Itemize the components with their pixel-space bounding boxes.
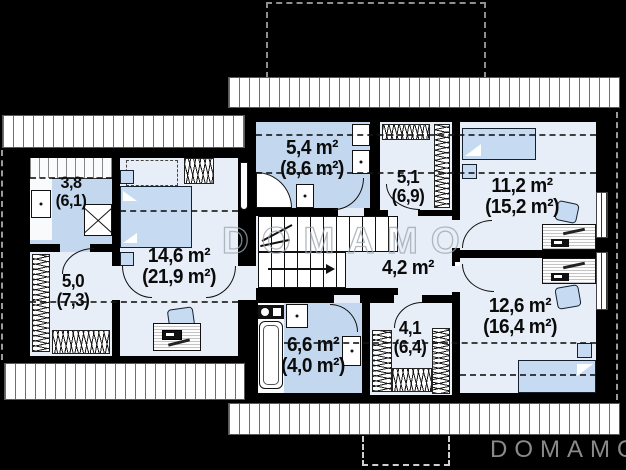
door-opening [388,210,418,216]
stair-arrow-head [326,264,335,274]
stair-direction-arrow [268,268,328,270]
nightstand-icon [577,343,592,358]
door-leaf [240,162,248,210]
door-opening [112,266,120,300]
nightstand-icon [120,170,134,184]
single-bed-icon [518,360,596,393]
roof-slope-line [30,177,112,179]
dormer-outline-top [266,2,486,78]
floor-plan-canvas: 3,8 (6,1) 5,0 (7,3) 14,6 m² (21 [0,0,626,470]
desk-icon [153,323,201,351]
roof-strip-bottom-right [228,403,620,435]
keyboard-icon [551,239,569,247]
roof-slope-line [284,342,596,344]
wardrobe-rail-icon [434,124,450,208]
roof-strip-top-right [228,77,620,108]
roof-slope-line [460,374,596,376]
dormer-outline-bottom [362,436,450,466]
door-opening [334,295,360,303]
wardrobe-rail-icon [392,368,432,392]
eave-edge-left [1,150,3,360]
washing-machine-icon [286,304,308,328]
pen-icon [563,262,585,270]
room-bedroom-left: 14,6 m² (21,9 m²) [120,158,238,356]
watermark: DOMAMO [222,220,473,262]
laptop-icon [162,330,182,340]
window-icon [596,192,608,238]
double-bed-icon [120,186,192,248]
brand-logo: DOMAMO [490,436,626,464]
roof-slope-line [256,172,596,174]
room-bathroom-top-left: 3,8 (6,1) [30,158,112,244]
room-label: 5,0 (7,3) [40,272,107,310]
room-label: 3,8 (6,1) [38,174,105,210]
roof-slope-line [120,210,238,212]
wardrobe-rail-icon [382,124,430,140]
wall-under-stairs [256,288,398,296]
roof-strip-top-left [2,115,245,148]
washer-dryer-icons [258,305,284,319]
roof-slope-line [256,134,596,136]
roof-slope-line [30,301,238,303]
window-icon [596,252,608,310]
eave-edge-right [616,112,618,400]
roof-strip-bottom-left [4,363,245,400]
pen-icon [563,228,585,236]
room-label: 11,2 m² (15,2 m²) [463,176,581,218]
single-bed-icon [462,128,536,160]
door-opening [338,208,364,216]
keyboard-icon [551,273,569,281]
desk-icon [542,224,596,250]
desk-icon [542,258,596,284]
wardrobe-rail-icon [52,330,110,354]
wardrobe-rail-icon [184,158,214,184]
door-opening [452,266,460,292]
room-label: 12,6 m² (16,4 m²) [463,296,577,338]
toilet-icon [296,184,314,208]
door-opening [238,266,256,300]
